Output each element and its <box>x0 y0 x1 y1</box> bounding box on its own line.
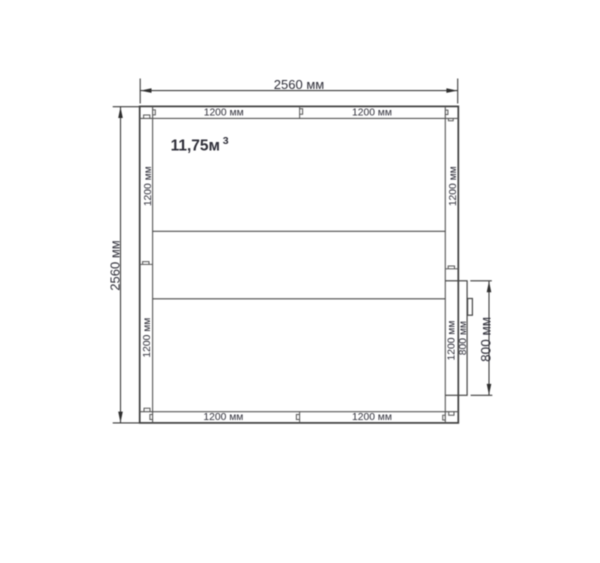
svg-text:1200 мм: 1200 мм <box>142 318 153 358</box>
svg-text:800 мм: 800 мм <box>478 317 493 362</box>
svg-text:1200 мм: 1200 мм <box>352 107 392 118</box>
svg-text:1200 мм: 1200 мм <box>143 166 154 206</box>
svg-text:1200 мм: 1200 мм <box>203 412 243 423</box>
svg-text:2560 мм: 2560 мм <box>108 240 123 290</box>
svg-text:800 мм: 800 мм <box>458 321 469 355</box>
svg-text:2560 мм: 2560 мм <box>274 77 324 92</box>
svg-text:1200 мм: 1200 мм <box>447 321 458 361</box>
svg-text:1200 мм: 1200 мм <box>448 166 459 206</box>
svg-text:1200 мм: 1200 мм <box>352 412 392 423</box>
svg-text:1200 мм: 1200 мм <box>204 107 244 118</box>
